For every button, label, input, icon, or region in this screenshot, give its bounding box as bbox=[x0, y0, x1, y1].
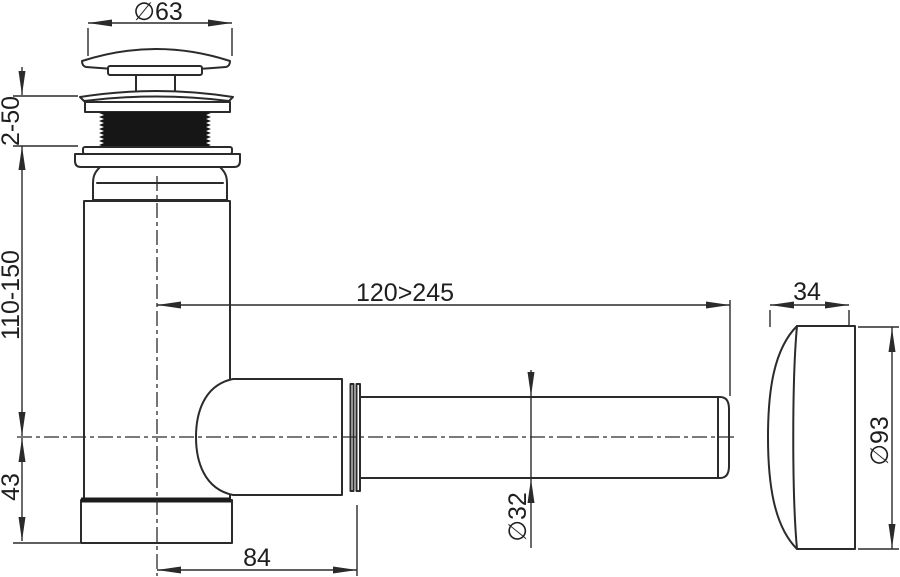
arrowhead-down bbox=[19, 71, 26, 95]
dim-label-clamp-range: 2-50 bbox=[0, 96, 25, 146]
dimension-line bbox=[770, 305, 849, 327]
dim-flange-diameter: ∅93 bbox=[858, 327, 899, 549]
arrowhead-down bbox=[889, 524, 896, 548]
lower-flange bbox=[75, 154, 240, 167]
clamping-thread bbox=[104, 112, 206, 147]
cap-under-plate bbox=[108, 66, 202, 75]
arrowhead-right bbox=[208, 20, 232, 27]
arrowhead-right bbox=[333, 567, 357, 574]
dim-label-pipe-diameter: ∅32 bbox=[504, 492, 532, 542]
dim-label-flange-diameter: ∅93 bbox=[866, 416, 894, 466]
wall-flange bbox=[768, 326, 855, 549]
dim-label-cap-diameter: ∅63 bbox=[133, 0, 183, 26]
thread-teeth-right bbox=[206, 112, 211, 147]
arrowhead-down bbox=[19, 412, 26, 436]
arrowhead-right bbox=[706, 302, 730, 309]
arrowhead-down bbox=[19, 517, 26, 541]
dim-label-body-height: 110-150 bbox=[0, 250, 25, 340]
dim-body-height: 110-150 bbox=[0, 146, 26, 436]
lower-band bbox=[83, 147, 232, 154]
trap-body-group bbox=[81, 201, 729, 543]
top-washer bbox=[80, 91, 233, 101]
arrowhead-up bbox=[889, 328, 896, 352]
arrowhead-left bbox=[157, 567, 181, 574]
bottle-trap-diagram: ∅63 2-50 110-150 43 120>245 84 bbox=[0, 0, 900, 577]
arrowhead-down bbox=[528, 372, 535, 396]
arrowhead-up bbox=[19, 438, 26, 462]
dim-cap-diameter: ∅63 bbox=[88, 0, 232, 56]
dim-flange-depth: 34 bbox=[770, 278, 849, 327]
dim-label-flange-depth: 34 bbox=[793, 278, 821, 306]
dim-outlet-height: 43 bbox=[0, 438, 80, 543]
thread-teeth-left bbox=[99, 112, 104, 147]
dim-label-axis-to-nut-end: 84 bbox=[243, 544, 271, 572]
dim-label-horizontal-reach: 120>245 bbox=[356, 279, 454, 307]
technical-drawing-canvas: ∅63 2-50 110-150 43 120>245 84 bbox=[0, 0, 900, 577]
upper-flange-band bbox=[85, 102, 230, 112]
arrowhead-left bbox=[770, 302, 794, 309]
dim-clamp-range: 2-50 bbox=[0, 67, 78, 170]
arrowhead-left bbox=[88, 20, 112, 27]
dim-label-outlet-height: 43 bbox=[0, 473, 25, 501]
arrowhead-right bbox=[825, 302, 849, 309]
wall-flange-group bbox=[768, 326, 855, 549]
